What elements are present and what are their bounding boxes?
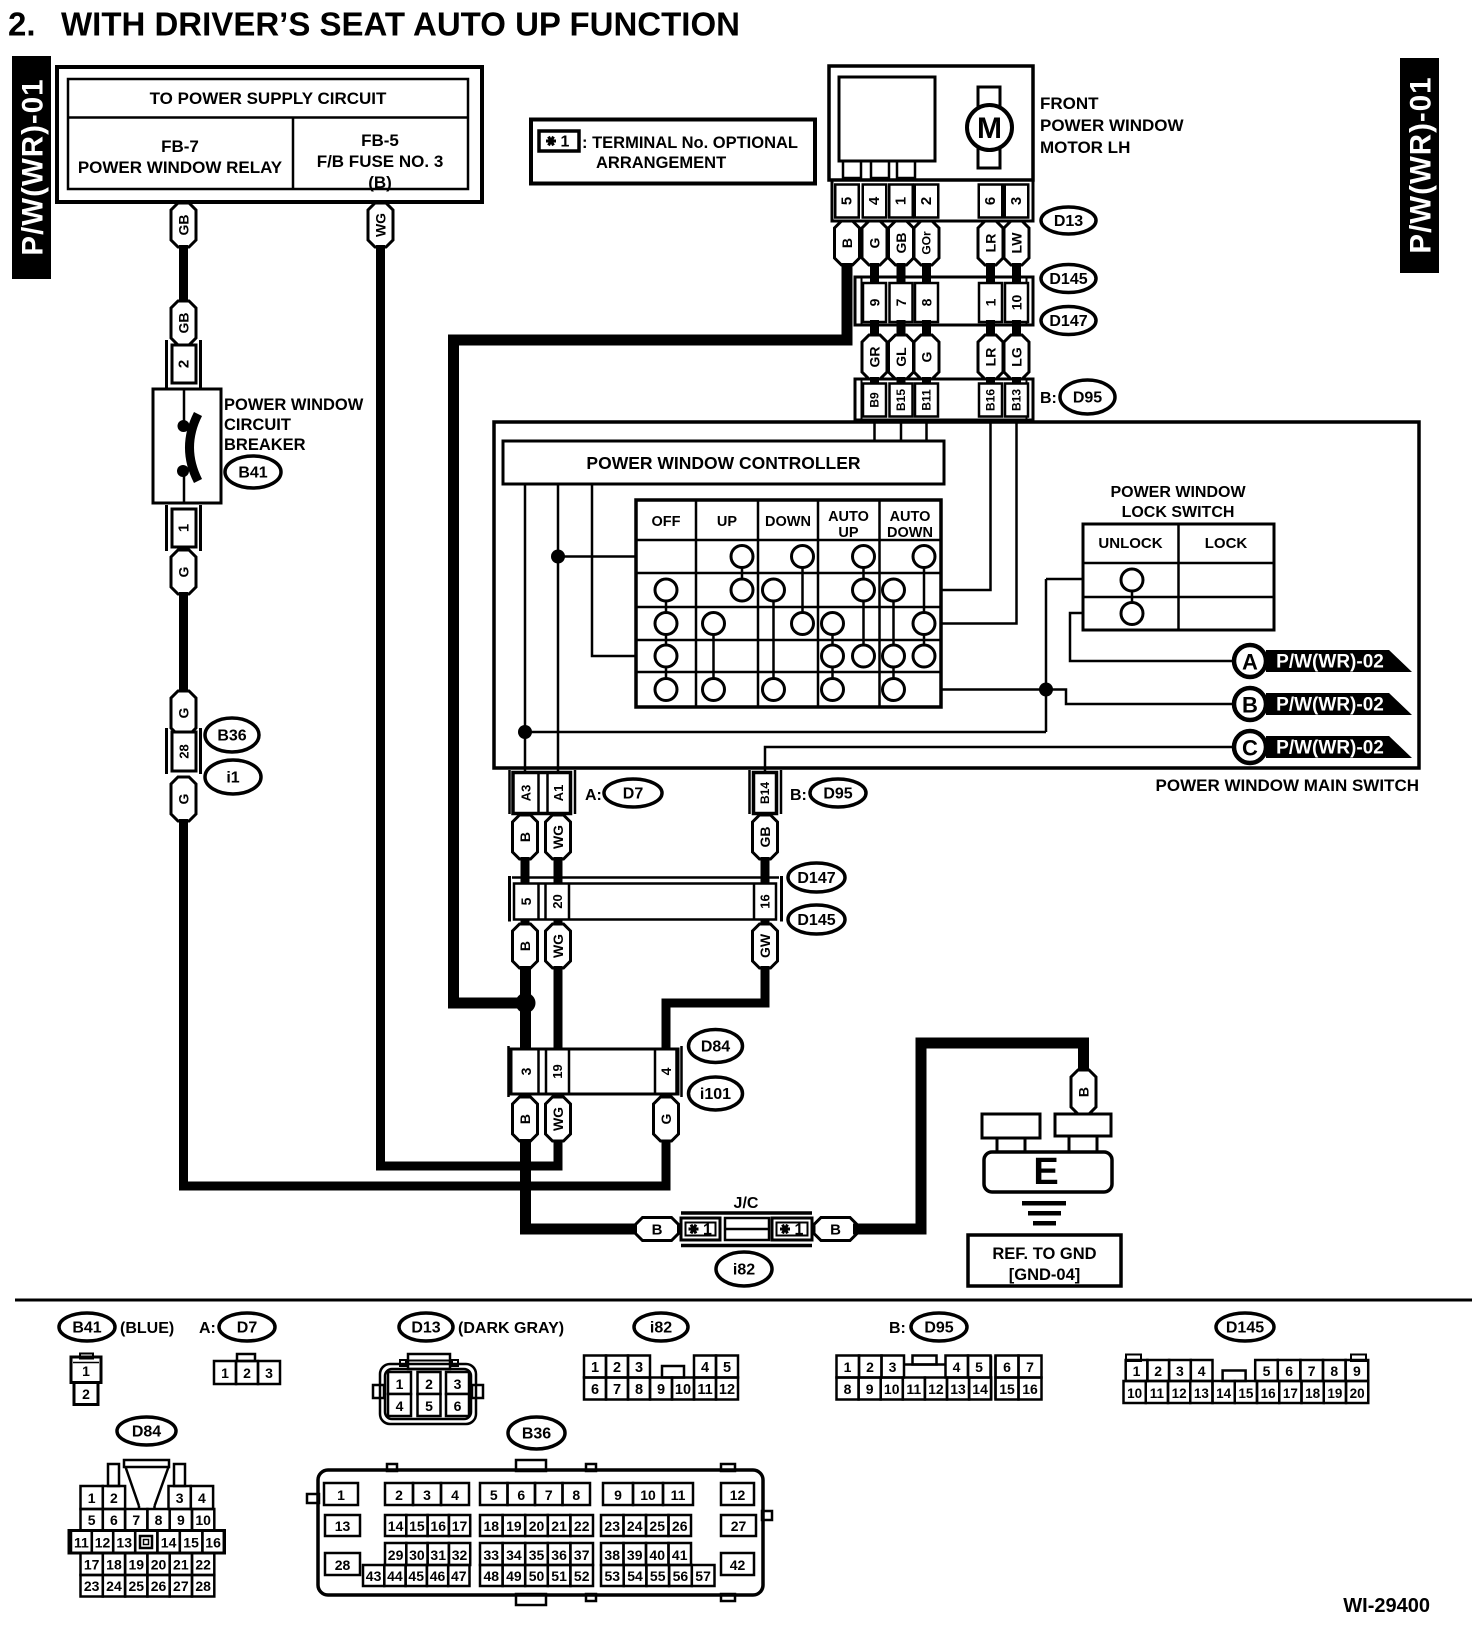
svg-text:9: 9 [177,1512,185,1528]
svg-text:11: 11 [906,1381,921,1397]
svg-text:14: 14 [388,1518,404,1534]
svg-text:5: 5 [88,1512,96,1528]
svg-text:DOWN: DOWN [887,525,933,541]
svg-text:16: 16 [430,1518,446,1534]
svg-text:8: 8 [155,1512,163,1528]
svg-text:B41: B41 [238,465,267,482]
svg-text:1: 1 [88,1490,96,1506]
svg-text:19: 19 [1327,1386,1342,1401]
svg-text:20: 20 [151,1557,167,1573]
svg-text:7: 7 [545,1487,553,1503]
svg-text:POWER WINDOW CONTROLLER: POWER WINDOW CONTROLLER [586,453,861,473]
svg-text:43: 43 [366,1568,382,1584]
svg-text:6: 6 [454,1398,462,1414]
svg-text:5: 5 [490,1487,498,1503]
svg-text:LW: LW [1009,232,1025,254]
svg-text:3: 3 [518,1067,534,1075]
svg-text:WG: WG [550,934,566,958]
svg-text:41: 41 [672,1547,688,1563]
svg-text:29: 29 [388,1547,404,1563]
svg-text:4: 4 [396,1398,404,1414]
svg-text:8: 8 [844,1381,852,1397]
svg-text:B9: B9 [868,392,882,408]
svg-text:D13: D13 [1054,213,1083,230]
svg-text:B: B [517,941,533,951]
svg-text:27: 27 [173,1578,189,1594]
svg-text:45: 45 [408,1568,424,1584]
svg-text:i101: i101 [700,1086,731,1103]
svg-text:BREAKER: BREAKER [224,436,306,454]
svg-text:37: 37 [574,1547,590,1563]
svg-text:40: 40 [649,1547,665,1563]
svg-text:D95: D95 [823,786,852,803]
svg-text:26: 26 [672,1518,688,1534]
svg-text:5: 5 [1263,1363,1271,1379]
svg-text:1: 1 [844,1359,852,1375]
svg-text:2: 2 [395,1487,403,1503]
svg-text:B: B [1242,693,1258,718]
svg-text:WG: WG [373,213,389,237]
svg-text:5: 5 [839,197,856,205]
svg-text:D145: D145 [1049,271,1087,288]
svg-text:M: M [977,112,1002,145]
svg-text:4: 4 [658,1067,674,1075]
svg-text:53: 53 [605,1568,621,1584]
svg-text:2: 2 [613,1360,621,1376]
svg-text:UP: UP [717,514,737,530]
svg-text:A: A [1242,650,1258,675]
svg-text:16: 16 [205,1535,221,1551]
svg-text:5: 5 [723,1360,731,1376]
svg-text:D145: D145 [797,912,835,929]
svg-text:B: B [1076,1087,1092,1097]
svg-text:A3: A3 [519,785,534,802]
svg-text:CIRCUIT: CIRCUIT [224,416,291,434]
svg-text:1: 1 [176,524,193,532]
svg-text:2: 2 [425,1376,433,1392]
svg-text:(DARK GRAY): (DARK GRAY) [458,1320,564,1337]
svg-text:19: 19 [550,1064,565,1078]
svg-text:21: 21 [173,1557,189,1573]
svg-text:GOr: GOr [920,231,934,255]
svg-text:2.: 2. [8,6,36,43]
svg-text:WITH DRIVER’S SEAT AUTO UP FUN: WITH DRIVER’S SEAT AUTO UP FUNCTION [61,6,740,43]
svg-text:10: 10 [640,1487,656,1503]
svg-text:AUTO: AUTO [828,509,869,525]
svg-text:UNLOCK: UNLOCK [1098,535,1162,552]
svg-text:D84: D84 [132,1424,161,1441]
svg-text:B41: B41 [72,1320,101,1337]
svg-text:A:: A: [199,1320,216,1337]
svg-text:4: 4 [451,1487,459,1503]
svg-text:B11: B11 [920,389,934,411]
svg-text:17: 17 [452,1518,468,1534]
svg-text:LG: LG [1009,347,1025,367]
svg-text:i1: i1 [226,770,239,787]
svg-text:2: 2 [82,1386,90,1402]
svg-text:6: 6 [517,1487,525,1503]
svg-text:11: 11 [671,1487,686,1503]
svg-text:5: 5 [518,897,534,905]
svg-text:3: 3 [265,1365,273,1381]
svg-text:6: 6 [591,1382,599,1398]
svg-text:13: 13 [1194,1386,1210,1401]
svg-text:46: 46 [430,1568,446,1584]
svg-text:D7: D7 [237,1320,258,1337]
svg-text:B36: B36 [217,728,246,745]
svg-text:23: 23 [604,1518,620,1534]
svg-text:8: 8 [1330,1363,1338,1379]
svg-text:8: 8 [635,1382,643,1398]
svg-text:28: 28 [195,1578,211,1594]
svg-text:12: 12 [95,1535,111,1551]
svg-text:B13: B13 [1010,389,1024,411]
svg-text:3: 3 [1008,197,1025,205]
svg-text:20: 20 [1350,1386,1365,1401]
svg-text:P/W(WR)-01: P/W(WR)-01 [1405,76,1438,253]
svg-text:14: 14 [1216,1386,1232,1401]
svg-text:B:: B: [1040,390,1057,407]
svg-text:51: 51 [551,1568,567,1584]
svg-text:FB-5: FB-5 [361,131,399,150]
svg-text:9: 9 [1353,1363,1361,1379]
svg-text:2: 2 [176,360,193,368]
svg-text:1: 1 [893,197,910,205]
svg-text:G: G [867,237,883,248]
svg-text:FRONT: FRONT [1040,94,1099,113]
svg-text:POWER WINDOW: POWER WINDOW [1040,116,1184,135]
svg-text:50: 50 [529,1568,545,1584]
svg-text:GB: GB [176,313,192,334]
svg-text:4: 4 [1198,1363,1206,1379]
svg-text:55: 55 [650,1568,666,1584]
svg-text:11: 11 [697,1382,712,1398]
svg-text:12: 12 [719,1382,735,1398]
svg-text:44: 44 [387,1568,403,1584]
svg-text:34: 34 [506,1547,522,1563]
svg-text:10: 10 [675,1382,691,1398]
svg-text:32: 32 [452,1547,468,1563]
svg-text:1: 1 [221,1365,229,1381]
svg-text:WG: WG [550,1107,566,1131]
svg-text:8: 8 [572,1487,580,1503]
svg-text:20: 20 [550,894,565,908]
svg-text:7: 7 [893,298,909,306]
svg-text:4: 4 [866,196,883,205]
svg-text:POWER WINDOW MAIN SWITCH: POWER WINDOW MAIN SWITCH [1156,776,1419,795]
svg-text:33: 33 [484,1547,500,1563]
svg-text:57: 57 [695,1568,711,1584]
svg-text:D84: D84 [701,1039,730,1056]
svg-text:9: 9 [614,1487,622,1503]
svg-text:7: 7 [1308,1363,1316,1379]
svg-text:B: B [839,238,855,248]
svg-text:25: 25 [128,1578,144,1594]
svg-text:52: 52 [574,1568,590,1584]
svg-text:4: 4 [953,1359,961,1375]
svg-text:D95: D95 [1073,390,1102,407]
svg-text:B: B [830,1222,841,1239]
svg-text:LOCK SWITCH: LOCK SWITCH [1122,504,1235,521]
svg-text:2: 2 [1154,1363,1162,1379]
svg-text:12: 12 [928,1381,944,1397]
svg-text:2: 2 [918,197,935,205]
svg-text:1: 1 [983,298,999,306]
svg-text:2: 2 [243,1365,251,1381]
svg-text:3: 3 [423,1487,431,1503]
svg-text:24: 24 [106,1578,122,1594]
svg-text:D13: D13 [411,1320,440,1337]
svg-text:A1: A1 [551,785,566,802]
svg-text:B: B [517,1114,533,1124]
svg-text:54: 54 [627,1568,643,1584]
svg-text:10: 10 [1127,1386,1142,1401]
svg-text:G: G [176,793,192,804]
svg-text:A:: A: [585,787,602,804]
svg-text:B36: B36 [522,1426,551,1443]
svg-text:G: G [919,351,935,362]
svg-text:28: 28 [177,744,192,758]
svg-text:9: 9 [657,1382,665,1398]
svg-text:LOCK: LOCK [1205,535,1248,552]
svg-text:23: 23 [84,1578,100,1594]
svg-text:GB: GB [757,827,773,848]
svg-text:F/B FUSE NO. 3: F/B FUSE NO. 3 [317,152,444,171]
svg-text:3: 3 [889,1359,897,1375]
svg-text:6: 6 [1285,1363,1293,1379]
svg-text:[GND-04]: [GND-04] [1009,1266,1081,1284]
svg-text:18: 18 [106,1557,122,1573]
svg-text:POWER WINDOW: POWER WINDOW [1110,484,1246,501]
svg-text:REF. TO GND: REF. TO GND [992,1245,1096,1263]
svg-text:: TERMINAL No. OPTIONAL: : TERMINAL No. OPTIONAL [582,134,798,152]
svg-text:11: 11 [74,1535,89,1551]
svg-text:19: 19 [506,1518,522,1534]
svg-text:GR: GR [867,347,883,368]
svg-text:10: 10 [1009,295,1025,311]
svg-text:i82: i82 [650,1320,672,1337]
svg-text:3: 3 [1176,1363,1184,1379]
svg-text:B: B [652,1222,663,1239]
svg-text:P/W(WR)-02: P/W(WR)-02 [1276,738,1384,759]
svg-text:ARRANGEMENT: ARRANGEMENT [596,154,726,172]
svg-text:17: 17 [1283,1386,1298,1401]
svg-text:17: 17 [84,1557,100,1573]
svg-text:13: 13 [116,1535,132,1551]
svg-text:(BLUE): (BLUE) [120,1320,174,1337]
svg-text:14: 14 [161,1535,177,1551]
svg-text:WI-29400: WI-29400 [1343,1595,1430,1617]
svg-text:D147: D147 [1049,313,1087,330]
svg-text:19: 19 [128,1557,144,1573]
svg-text:6: 6 [1003,1359,1011,1375]
svg-text:J/C: J/C [734,1195,759,1212]
svg-text:56: 56 [673,1568,689,1584]
svg-text:6: 6 [982,197,999,205]
svg-text:1: 1 [795,1222,804,1239]
svg-text:10: 10 [884,1381,900,1397]
svg-text:4: 4 [198,1490,206,1506]
svg-text:G: G [176,707,192,718]
svg-text:26: 26 [151,1578,167,1594]
svg-text:P/W(WR)-01: P/W(WR)-01 [17,78,50,255]
svg-text:21: 21 [551,1518,567,1534]
svg-text:B15: B15 [894,389,908,411]
svg-text:POWER WINDOW RELAY: POWER WINDOW RELAY [78,158,283,177]
svg-text:P/W(WR)-02: P/W(WR)-02 [1276,695,1384,716]
svg-text:D145: D145 [1226,1320,1264,1337]
svg-text:8: 8 [919,298,935,306]
svg-text:UP: UP [838,525,858,541]
svg-text:9: 9 [866,1381,874,1397]
svg-text:1: 1 [561,134,570,151]
svg-text:38: 38 [604,1547,620,1563]
svg-text:39: 39 [627,1547,643,1563]
svg-text:25: 25 [649,1518,665,1534]
svg-text:6: 6 [110,1512,118,1528]
svg-text:12: 12 [1172,1386,1187,1401]
svg-text:15: 15 [183,1535,199,1551]
svg-text:27: 27 [731,1518,747,1534]
svg-text:3: 3 [454,1376,462,1392]
svg-text:i82: i82 [733,1262,755,1279]
svg-text:16: 16 [1022,1381,1038,1397]
svg-text:18: 18 [484,1518,500,1534]
svg-text:5: 5 [975,1359,983,1375]
svg-text:11: 11 [1150,1386,1165,1401]
svg-text:7: 7 [613,1382,621,1398]
svg-text:9: 9 [867,298,883,306]
svg-text:1: 1 [591,1360,599,1376]
svg-text:28: 28 [335,1557,351,1573]
svg-text:2: 2 [866,1359,874,1375]
svg-text:48: 48 [484,1568,500,1584]
svg-text:16: 16 [758,894,773,908]
svg-text:15: 15 [999,1381,1015,1397]
svg-text:10: 10 [195,1512,211,1528]
svg-text:22: 22 [574,1518,590,1534]
svg-text:POWER WINDOW: POWER WINDOW [224,396,364,414]
svg-text:P/W(WR)-02: P/W(WR)-02 [1276,652,1384,673]
svg-text:(B): (B) [368,173,392,192]
svg-text:42: 42 [730,1557,746,1573]
svg-text:B14: B14 [758,782,772,804]
svg-text:49: 49 [506,1568,522,1584]
svg-text:WG: WG [550,825,566,849]
svg-text:OFF: OFF [652,514,681,530]
svg-text:TO POWER SUPPLY CIRCUIT: TO POWER SUPPLY CIRCUIT [150,89,387,108]
svg-text:14: 14 [972,1381,988,1397]
svg-text:47: 47 [451,1568,467,1584]
svg-text:16: 16 [1261,1386,1277,1401]
svg-text:13: 13 [950,1381,966,1397]
svg-text:GW: GW [757,933,773,958]
svg-text:36: 36 [551,1547,567,1563]
svg-text:15: 15 [1238,1386,1254,1401]
svg-text:B: B [517,832,533,842]
svg-text:18: 18 [1305,1386,1321,1401]
svg-text:DOWN: DOWN [765,514,811,530]
svg-text:7: 7 [1026,1359,1034,1375]
svg-text:E: E [1033,1151,1058,1193]
svg-text:30: 30 [409,1547,425,1563]
svg-text:7: 7 [132,1512,140,1528]
svg-text:LR: LR [983,234,999,253]
svg-text:LR: LR [983,348,999,367]
svg-text:1: 1 [1133,1363,1141,1379]
svg-text:G: G [176,566,192,577]
svg-text:GL: GL [893,347,909,367]
svg-text:1: 1 [82,1363,90,1379]
svg-text:24: 24 [627,1518,643,1534]
svg-text:3: 3 [176,1490,184,1506]
svg-text:3: 3 [635,1360,643,1376]
svg-text:GB: GB [176,215,192,236]
svg-text:B:: B: [889,1320,906,1337]
svg-text:MOTOR LH: MOTOR LH [1040,138,1130,157]
svg-text:31: 31 [430,1547,446,1563]
svg-text:D95: D95 [924,1320,953,1337]
svg-text:GB: GB [893,233,909,254]
svg-text:22: 22 [195,1557,211,1573]
svg-text:AUTO: AUTO [890,509,931,525]
svg-text:FB-7: FB-7 [161,137,199,156]
svg-text:13: 13 [335,1518,351,1534]
svg-text:15: 15 [409,1518,425,1534]
svg-text:4: 4 [701,1360,709,1376]
svg-text:B16: B16 [984,389,998,411]
svg-text:5: 5 [425,1398,433,1414]
svg-text:D147: D147 [797,870,835,887]
svg-text:B:: B: [790,787,807,804]
svg-text:1: 1 [337,1487,345,1503]
svg-text:1: 1 [396,1376,404,1392]
svg-text:C: C [1242,736,1258,761]
svg-text:35: 35 [529,1547,545,1563]
svg-text:1: 1 [703,1222,712,1239]
svg-text:12: 12 [730,1487,746,1503]
svg-text:20: 20 [529,1518,545,1534]
svg-text:2: 2 [110,1490,118,1506]
svg-text:G: G [658,1113,674,1124]
svg-text:D7: D7 [623,786,644,803]
